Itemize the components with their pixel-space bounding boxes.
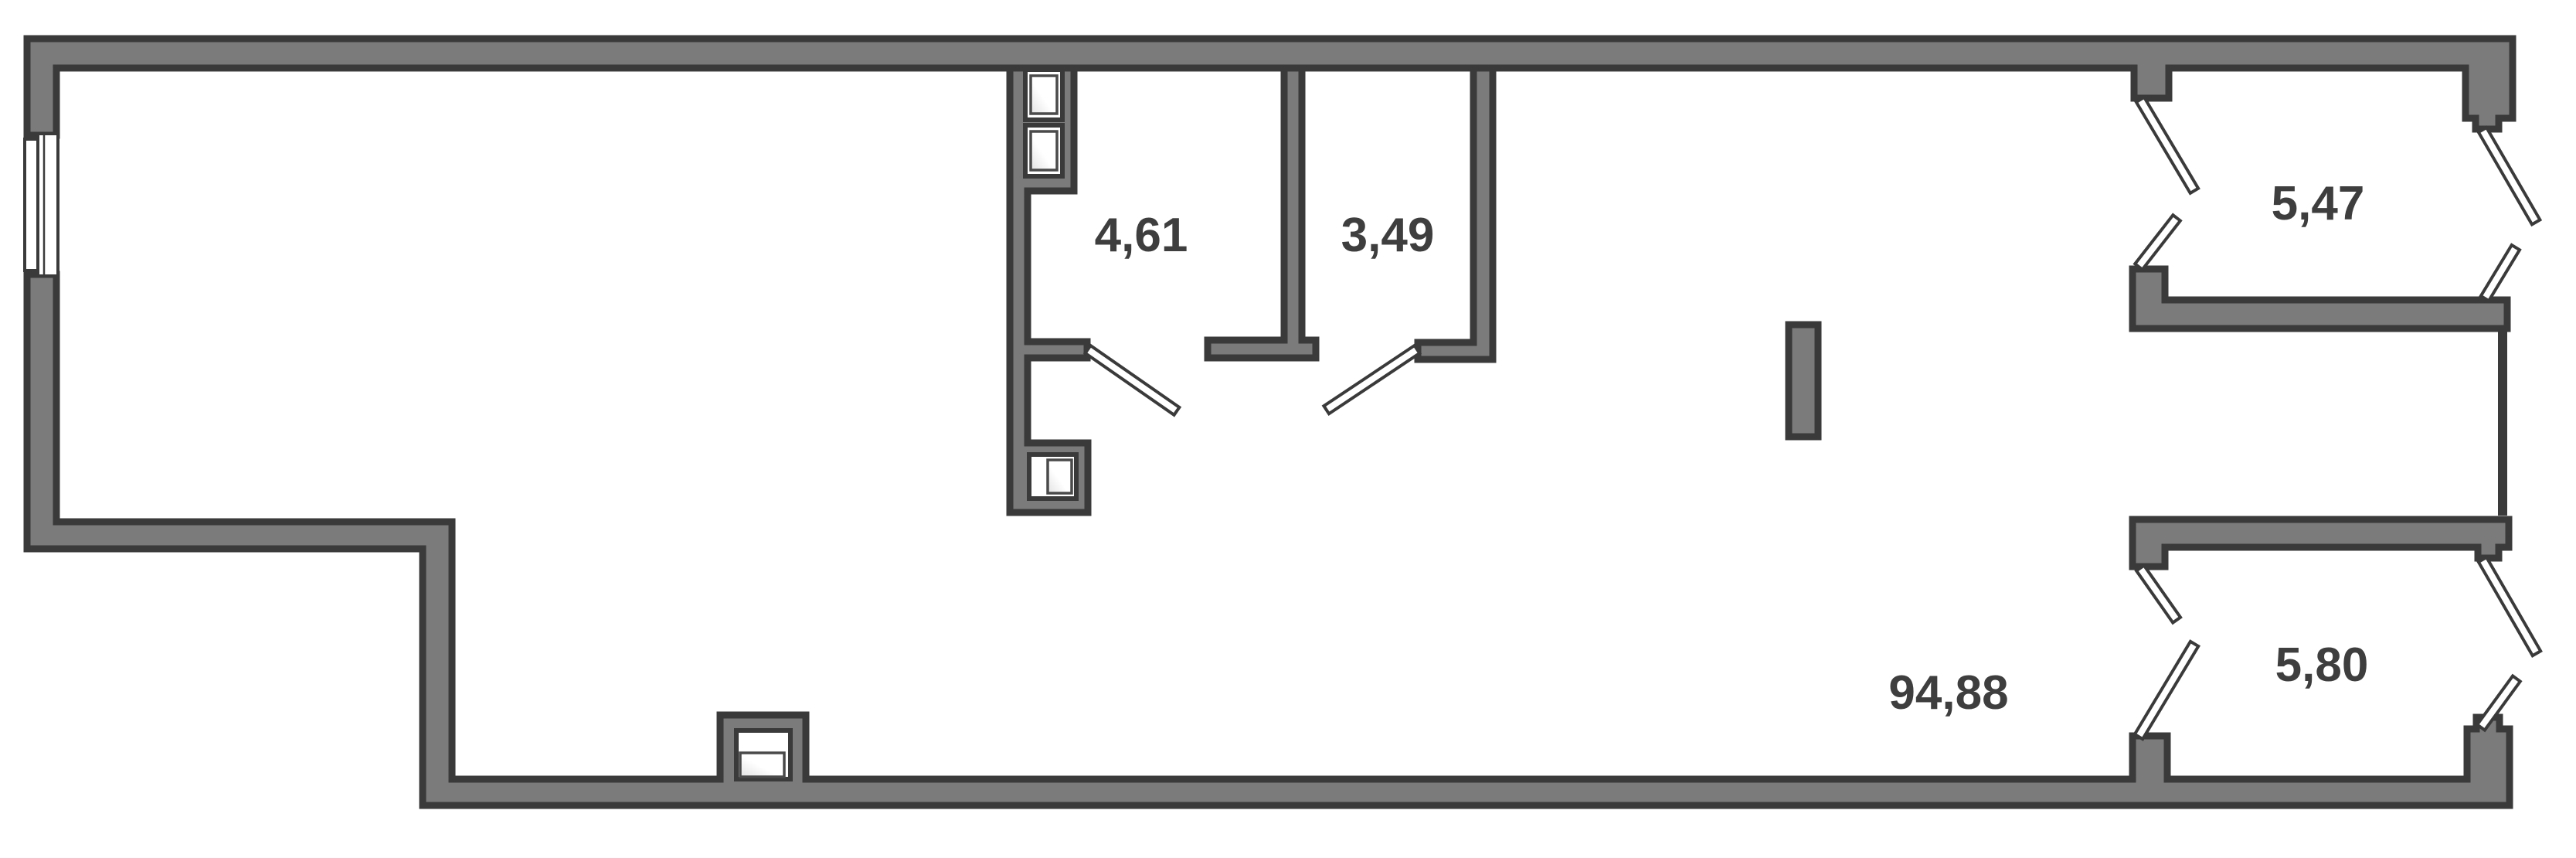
duct-fixture-left-group: [1029, 455, 1076, 499]
duct-fixture-bottom-group: [736, 730, 790, 779]
floor-plan-svg: 4,61 3,49 5,47 94,88 5,80: [0, 0, 2576, 858]
room-area-label: 94,88: [1888, 666, 2008, 720]
pillar: [1789, 325, 1818, 437]
duct-inner: [1048, 460, 1072, 493]
room-area-label: 3,49: [1341, 209, 1435, 262]
window-icon: [25, 139, 38, 271]
room-area-label: 5,47: [2272, 177, 2365, 230]
floor-plan: 4,61 3,49 5,47 94,88 5,80: [0, 0, 2576, 858]
window-icon: [38, 134, 58, 276]
thin-wall-right-edge: [2498, 329, 2507, 516]
room-area-label: 5,80: [2275, 638, 2369, 692]
vent-shaft-inner: [1031, 131, 1057, 170]
vent-shaft-inner: [1031, 76, 1057, 114]
duct-inner: [740, 753, 784, 777]
room-area-label: 4,61: [1095, 209, 1188, 262]
window-group: [25, 134, 58, 276]
vent-shaft-group: [1025, 70, 1062, 176]
